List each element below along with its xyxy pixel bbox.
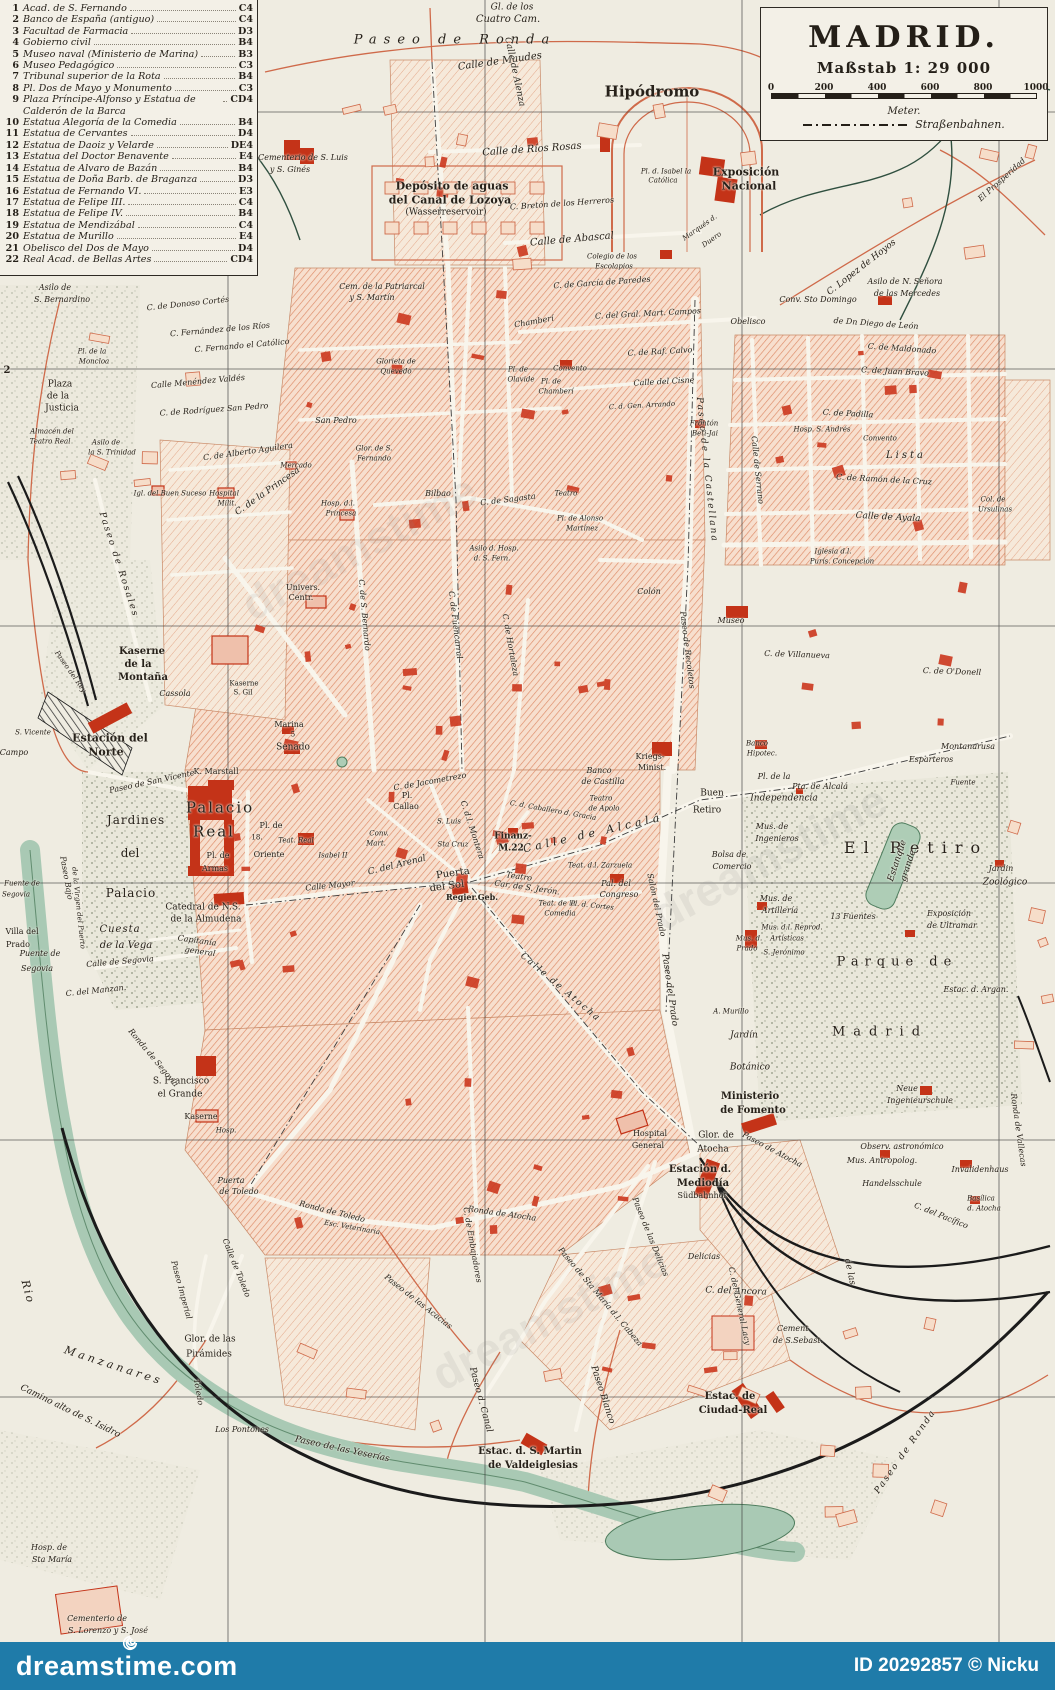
scale-tick: 0 <box>768 83 774 93</box>
legend-item: 4Gobierno civilB4 <box>4 37 253 48</box>
scale-tick: 800 <box>974 83 993 93</box>
image-id: ID 20292857 <box>854 1655 963 1676</box>
legend-item: 8Pl. Dos de Mayo y MonumentoC3 <box>4 83 253 94</box>
legend-item: 7Tribunal superior de la RotaB4 <box>4 71 253 82</box>
scale-ticks: 02004006008001000 <box>771 83 1037 93</box>
legend-item: 17Estatua de Felipe III.C4 <box>4 197 253 208</box>
legend-item: 12Estatua de Daoiz y VelardeDE4 <box>4 140 253 151</box>
legend-item: 22Real Acad. de Bellas ArtesCD4 <box>4 254 253 265</box>
legend-item: 16Estatua de Fernando VI.E3 <box>4 186 253 197</box>
spiral-icon <box>121 1634 139 1652</box>
hipodromo-track <box>612 88 762 252</box>
scale-tick: 200 <box>815 83 834 93</box>
legend-item: 14Estatua de Alvaro de BazánB4 <box>4 163 253 174</box>
legend-item: 5Museo naval (Ministerio de Marina)B3 <box>4 49 253 60</box>
legend-item: 2Banco de España (antiguo)C4 <box>4 14 253 25</box>
legend-item: 9Plaza Príncipe-Alfonso y Estatua de Cal… <box>4 94 253 117</box>
legend-item: 1Acad. de S. FernandoC4 <box>4 3 253 14</box>
legend-item: 15Estatua de Doña Barb. de BraganzaD3 <box>4 174 253 185</box>
legend-item: 3Facultad de FarmaciaD3 <box>4 26 253 37</box>
legend-item: 6Museo PedagógicoC3 <box>4 60 253 71</box>
scale-tick: 1000 <box>1023 83 1048 93</box>
scale-tick: 600 <box>921 83 940 93</box>
legend-item: 21Obelisco del Dos de MayoD4 <box>4 243 253 254</box>
legend-item: 13Estatua del Doctor BenaventeE4 <box>4 151 253 162</box>
dreamstime-logo: dreamstime.com <box>16 1651 238 1682</box>
map-title: MADRID. <box>761 20 1047 55</box>
tram-line-sample <box>803 124 907 126</box>
watermark-bar: dreamstime.com ID 20292857 © Nicku <box>0 1642 1055 1690</box>
map-scale-label: Maßstab 1: 29 000 <box>761 59 1047 77</box>
legend-item: 18Estatua de Felipe IV.B4 <box>4 208 253 219</box>
scale-bar: 02004006008001000 <box>771 83 1037 105</box>
legend-item: 11Estatua de CervantesD4 <box>4 128 253 139</box>
scale-tick: 400 <box>868 83 887 93</box>
tram-legend-label: Straßenbahnen. <box>915 118 1005 131</box>
legend-item: 20Estatua de MurilloE4 <box>4 231 253 242</box>
legend-box: 1Acad. de S. FernandoC42Banco de España … <box>0 0 258 276</box>
scanned-map-photo: Gl. de losCuatro Cam.Paseo de RondaCalle… <box>0 0 1055 1690</box>
image-credit: ID 20292857 © Nicku <box>854 1655 1039 1677</box>
scale-unit-label: Meter. <box>761 106 1047 117</box>
legend-item: 10Estatua Alegoría de la ComediaB4 <box>4 117 253 128</box>
legend-item: 19Estatua de MendizábalC4 <box>4 220 253 231</box>
scale-rule <box>771 93 1037 99</box>
author: © Nicku <box>968 1655 1039 1676</box>
title-box: MADRID. Maßstab 1: 29 000 02004006008001… <box>760 7 1048 141</box>
legend-list: 1Acad. de S. FernandoC42Banco de España … <box>4 3 253 265</box>
